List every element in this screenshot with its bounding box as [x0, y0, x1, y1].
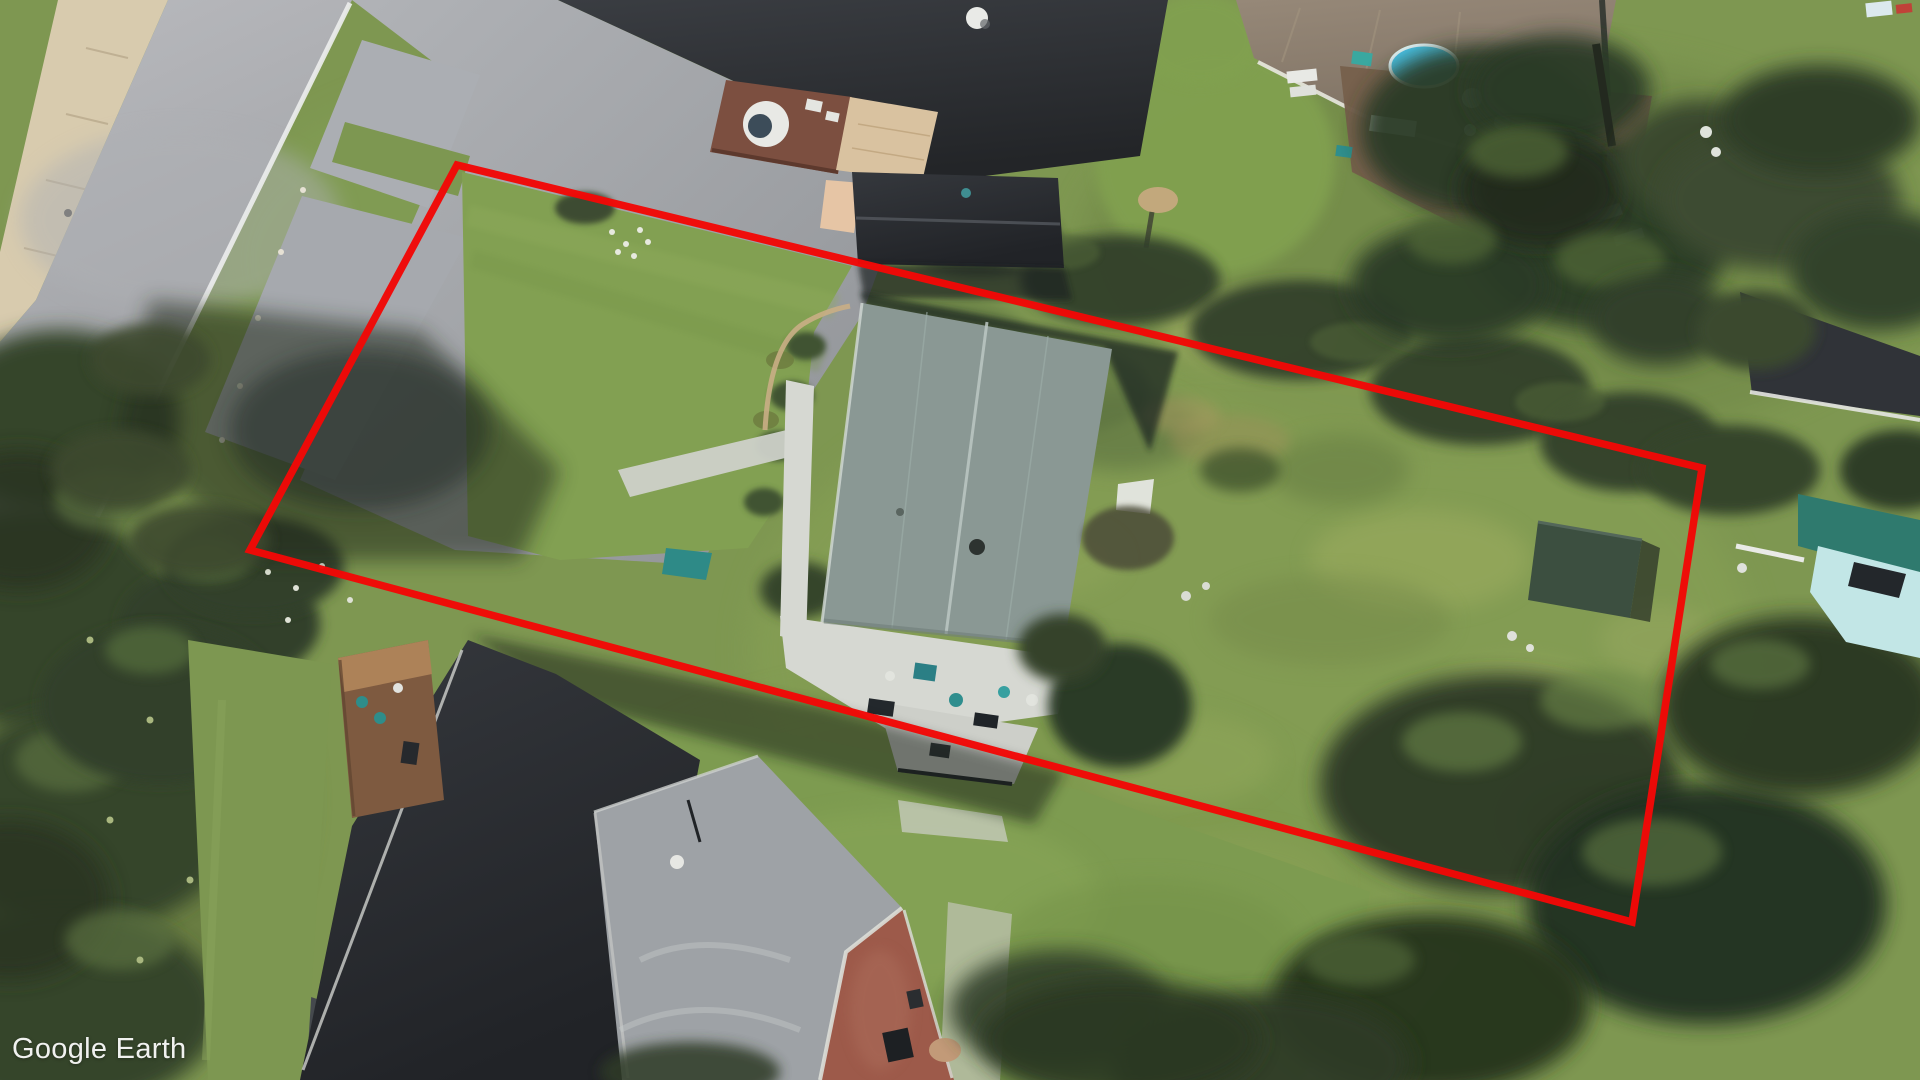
white-item	[1737, 563, 1747, 573]
canopy-gap	[1540, 670, 1660, 730]
canopy-light	[1710, 639, 1810, 689]
white-item	[1202, 582, 1210, 590]
drain	[64, 209, 72, 217]
flowers	[631, 253, 637, 259]
white-item	[1711, 147, 1721, 157]
white-item	[1526, 644, 1534, 652]
foliage-light	[105, 626, 195, 674]
roof-vent	[670, 855, 684, 869]
teal-item	[949, 693, 963, 707]
fleck	[347, 597, 353, 603]
hot-tub-water	[748, 114, 772, 138]
corner-object	[1896, 3, 1913, 14]
fleck	[107, 817, 114, 824]
canopy-light	[1407, 216, 1497, 264]
foliage	[1640, 425, 1820, 515]
hedge-light	[1515, 382, 1605, 422]
white-item	[1700, 126, 1712, 138]
tree-shadow	[230, 350, 490, 510]
corner-object	[1865, 1, 1892, 18]
white-table	[393, 683, 403, 693]
white-item	[1507, 631, 1517, 641]
stone	[300, 187, 306, 193]
teal-item	[1335, 145, 1352, 158]
flowers	[609, 229, 615, 235]
flowers	[645, 239, 651, 245]
white-item	[1181, 591, 1191, 601]
soil-patch	[1082, 506, 1174, 570]
teal-item	[1351, 51, 1373, 67]
canopy-light	[1582, 818, 1722, 886]
fleck	[285, 617, 291, 623]
meadow-patch	[1270, 435, 1410, 505]
flowers	[637, 227, 643, 233]
foliage	[50, 430, 190, 510]
canopy-light	[1305, 934, 1415, 986]
grill	[401, 741, 420, 765]
foliage-light	[65, 910, 175, 970]
stone	[278, 249, 284, 255]
earth-canvas[interactable]: Google Earth	[0, 0, 1920, 1080]
teal-chair	[356, 696, 368, 708]
roof-vent	[969, 539, 985, 555]
google-earth-watermark: Google Earth	[12, 1033, 187, 1066]
fleck	[265, 569, 271, 575]
foliage	[1720, 65, 1920, 175]
fleck	[147, 717, 154, 724]
canopy-light	[1402, 712, 1522, 772]
fleck	[137, 957, 144, 964]
foliage	[1696, 290, 1816, 370]
canopy-light	[1468, 126, 1568, 178]
fleck	[293, 585, 299, 591]
teal-chair	[374, 712, 386, 724]
white-item	[885, 671, 895, 681]
fleck	[187, 877, 194, 884]
foliage	[90, 324, 210, 396]
shrub	[744, 488, 784, 516]
roof-vent-shadow	[980, 19, 990, 29]
roof-vent	[896, 508, 904, 516]
bush	[1200, 448, 1280, 492]
foliage	[130, 504, 270, 576]
meadow-patch	[1210, 575, 1450, 665]
tan-spot	[929, 1038, 961, 1062]
foliage	[1018, 614, 1106, 682]
stone-patio	[836, 97, 938, 182]
fleck	[87, 637, 94, 644]
flowers	[615, 249, 621, 255]
flowers	[623, 241, 629, 247]
aerial-imagery	[0, 0, 1920, 1080]
white-item	[1026, 694, 1038, 706]
teal-item	[913, 663, 937, 682]
sand-spot	[1138, 187, 1178, 213]
garage-vent	[961, 188, 971, 198]
teal-item	[998, 686, 1010, 698]
